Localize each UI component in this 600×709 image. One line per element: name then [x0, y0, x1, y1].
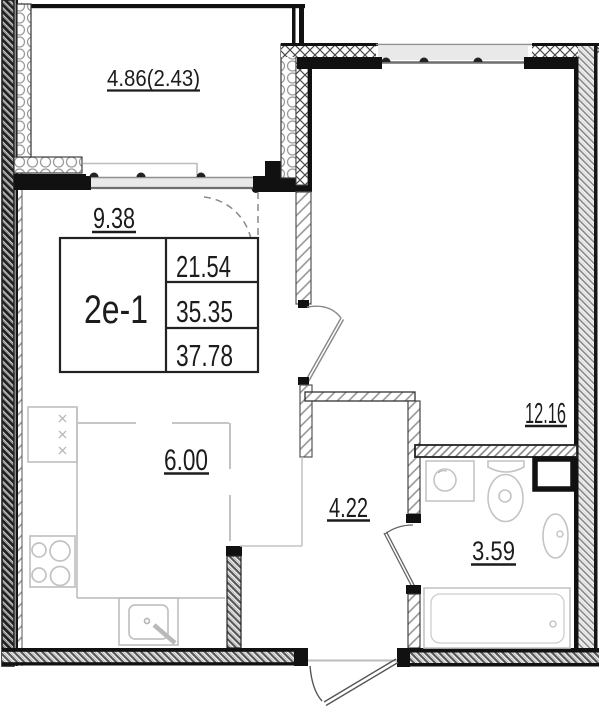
svg-text:9.38: 9.38 — [93, 203, 135, 235]
svg-text:4.22: 4.22 — [329, 492, 368, 523]
svg-text:21.54: 21.54 — [176, 249, 231, 284]
svg-text:37.78: 37.78 — [176, 338, 233, 373]
svg-text:4.86(2.43): 4.86(2.43) — [107, 65, 200, 91]
svg-text:2e-1: 2e-1 — [84, 288, 148, 332]
svg-text:3.59: 3.59 — [472, 536, 515, 566]
svg-text:35.35: 35.35 — [176, 294, 233, 329]
svg-text:6.00: 6.00 — [164, 444, 208, 477]
